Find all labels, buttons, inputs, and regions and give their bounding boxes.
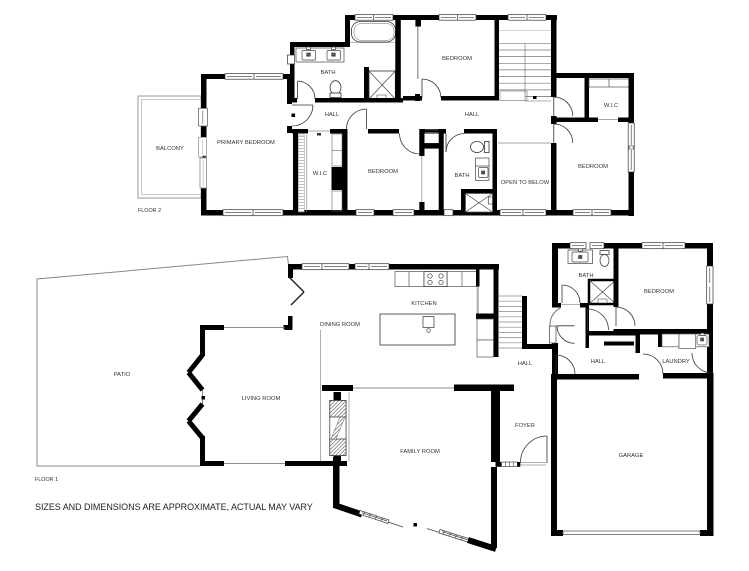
svg-text:FLOOR 1: FLOOR 1	[35, 477, 58, 483]
svg-text:PRIMARY BEDROOM: PRIMARY BEDROOM	[217, 140, 275, 146]
svg-text:BEDROOM: BEDROOM	[368, 169, 398, 175]
svg-text:HALL: HALL	[325, 112, 340, 118]
svg-text:HALL: HALL	[465, 112, 480, 118]
svg-text:GARAGE: GARAGE	[619, 453, 644, 459]
svg-text:BEDROOM: BEDROOM	[578, 164, 608, 170]
svg-text:BALCONY: BALCONY	[156, 146, 184, 152]
svg-text:SIZES AND DIMENSIONS ARE APPRO: SIZES AND DIMENSIONS ARE APPROXIMATE, AC…	[35, 502, 313, 512]
svg-text:DINING ROOM: DINING ROOM	[320, 322, 360, 328]
svg-text:HALL: HALL	[591, 359, 606, 365]
svg-text:KITCHEN: KITCHEN	[411, 301, 436, 307]
svg-text:LIVING ROOM: LIVING ROOM	[242, 396, 281, 402]
svg-text:FAMILY ROOM: FAMILY ROOM	[400, 449, 440, 455]
svg-text:FLOOR 2: FLOOR 2	[138, 208, 161, 214]
svg-text:HALL: HALL	[518, 361, 533, 367]
svg-text:W.I.C: W.I.C	[313, 171, 327, 177]
svg-text:BEDROOM: BEDROOM	[644, 289, 674, 295]
svg-text:W.I.C: W.I.C	[604, 103, 618, 109]
svg-text:BATH: BATH	[578, 273, 593, 279]
svg-text:BATH: BATH	[454, 173, 469, 179]
svg-text:OPEN TO BELOW: OPEN TO BELOW	[501, 180, 550, 186]
svg-text:LAUNDRY: LAUNDRY	[662, 359, 690, 365]
svg-text:BATH: BATH	[320, 70, 335, 76]
svg-text:PATIO: PATIO	[114, 372, 131, 378]
svg-text:FOYER: FOYER	[515, 423, 535, 429]
svg-text:BEDROOM: BEDROOM	[442, 56, 472, 62]
